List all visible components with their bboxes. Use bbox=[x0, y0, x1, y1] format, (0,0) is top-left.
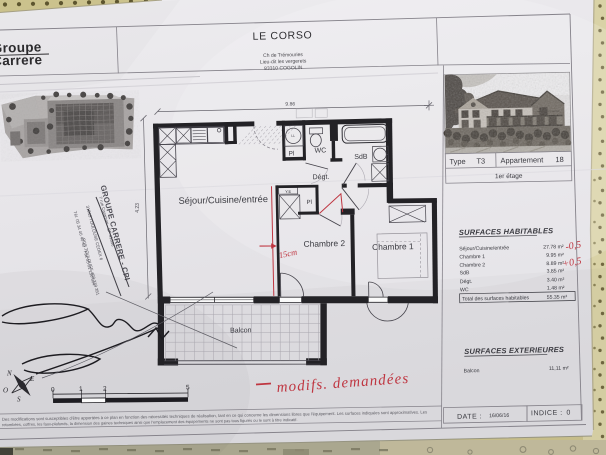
svg-text:DATE :: DATE : bbox=[457, 413, 482, 421]
svg-text:18: 18 bbox=[555, 155, 564, 164]
svg-text:O: O bbox=[3, 387, 8, 395]
svg-text:WC: WC bbox=[460, 287, 469, 293]
svg-text:Pl: Pl bbox=[307, 200, 312, 206]
svg-text:Balcon: Balcon bbox=[230, 327, 252, 334]
svg-text:0: 0 bbox=[51, 387, 55, 394]
svg-text:Chambre 1: Chambre 1 bbox=[372, 241, 414, 252]
svg-text:5: 5 bbox=[186, 384, 190, 391]
svg-text:Appartement: Appartement bbox=[500, 155, 544, 165]
svg-text:2: 2 bbox=[103, 386, 107, 393]
svg-text:Chambre 2: Chambre 2 bbox=[459, 262, 485, 269]
svg-text:LL: LL bbox=[291, 134, 295, 138]
svg-text:WC: WC bbox=[315, 147, 327, 154]
svg-text:3.40 m²: 3.40 m² bbox=[547, 277, 565, 283]
svg-text:1.48 m²: 1.48 m² bbox=[547, 285, 565, 291]
svg-text:SdB: SdB bbox=[354, 154, 368, 161]
svg-text:INDICE :: INDICE : bbox=[531, 410, 563, 418]
svg-text:11,11 m²: 11,11 m² bbox=[549, 366, 569, 372]
svg-text:Dégt.: Dégt. bbox=[313, 174, 330, 181]
svg-text:55.35 m²: 55.35 m² bbox=[547, 294, 568, 300]
svg-text:Séjour/Cuisine/entrée: Séjour/Cuisine/entrée bbox=[459, 245, 509, 252]
svg-text:T3: T3 bbox=[476, 156, 485, 165]
svg-text:LE CORSO: LE CORSO bbox=[252, 29, 312, 42]
svg-text:Y.E: Y.E bbox=[285, 189, 291, 194]
svg-text:1: 1 bbox=[79, 386, 83, 393]
svg-text:E: E bbox=[29, 375, 35, 383]
svg-text:4.23: 4.23 bbox=[135, 203, 141, 213]
svg-text:Pl: Pl bbox=[288, 150, 294, 157]
svg-text:SURFACES HABITABLES: SURFACES HABITABLES bbox=[459, 226, 554, 237]
svg-text:27.78 m²: 27.78 m² bbox=[543, 244, 564, 250]
svg-text:9.95 m²: 9.95 m² bbox=[546, 252, 564, 258]
svg-text:1er étage: 1er étage bbox=[495, 173, 523, 181]
svg-text:9.86: 9.86 bbox=[285, 101, 295, 107]
svg-text:S: S bbox=[17, 396, 21, 404]
svg-text:Chambre 1: Chambre 1 bbox=[459, 254, 485, 261]
svg-text:Séjour/Cuisine/entrée: Séjour/Cuisine/entrée bbox=[178, 194, 268, 206]
svg-text:Type: Type bbox=[449, 157, 465, 166]
svg-text:3.85 m²: 3.85 m² bbox=[546, 268, 564, 274]
svg-text:Balcon: Balcon bbox=[464, 368, 480, 374]
svg-text:Dégt.: Dégt. bbox=[460, 279, 473, 285]
svg-text:83310 COGOLIN: 83310 COGOLIN bbox=[264, 65, 303, 72]
svg-text:0: 0 bbox=[566, 410, 570, 417]
svg-text:N: N bbox=[6, 370, 12, 378]
svg-text:16/06/16: 16/06/16 bbox=[489, 413, 509, 419]
svg-text:Chambre 2: Chambre 2 bbox=[304, 238, 346, 249]
svg-text:SdB: SdB bbox=[460, 270, 470, 276]
